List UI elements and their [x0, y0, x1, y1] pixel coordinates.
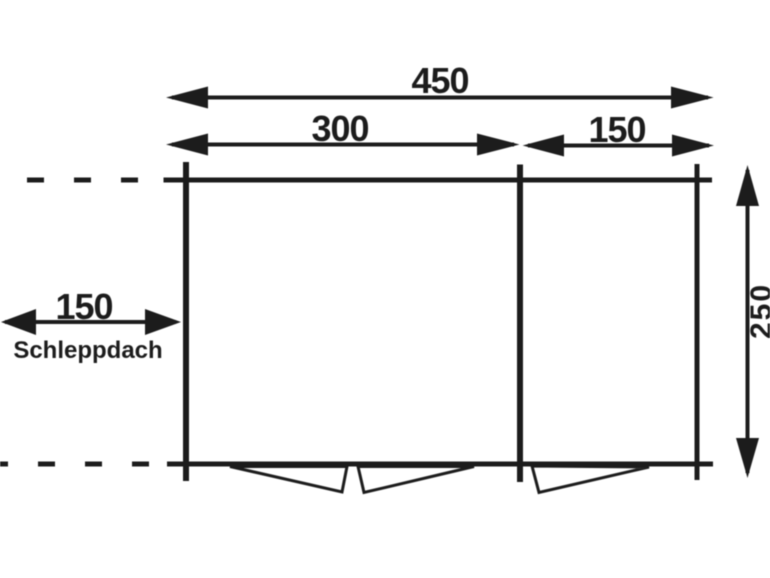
svg-text:300: 300 — [311, 108, 368, 149]
svg-text:150: 150 — [588, 109, 645, 150]
svg-text:Schleppdach: Schleppdach — [13, 337, 162, 364]
svg-text:150: 150 — [55, 286, 112, 327]
svg-text:450: 450 — [411, 60, 468, 101]
svg-text:250: 250 — [745, 283, 770, 339]
